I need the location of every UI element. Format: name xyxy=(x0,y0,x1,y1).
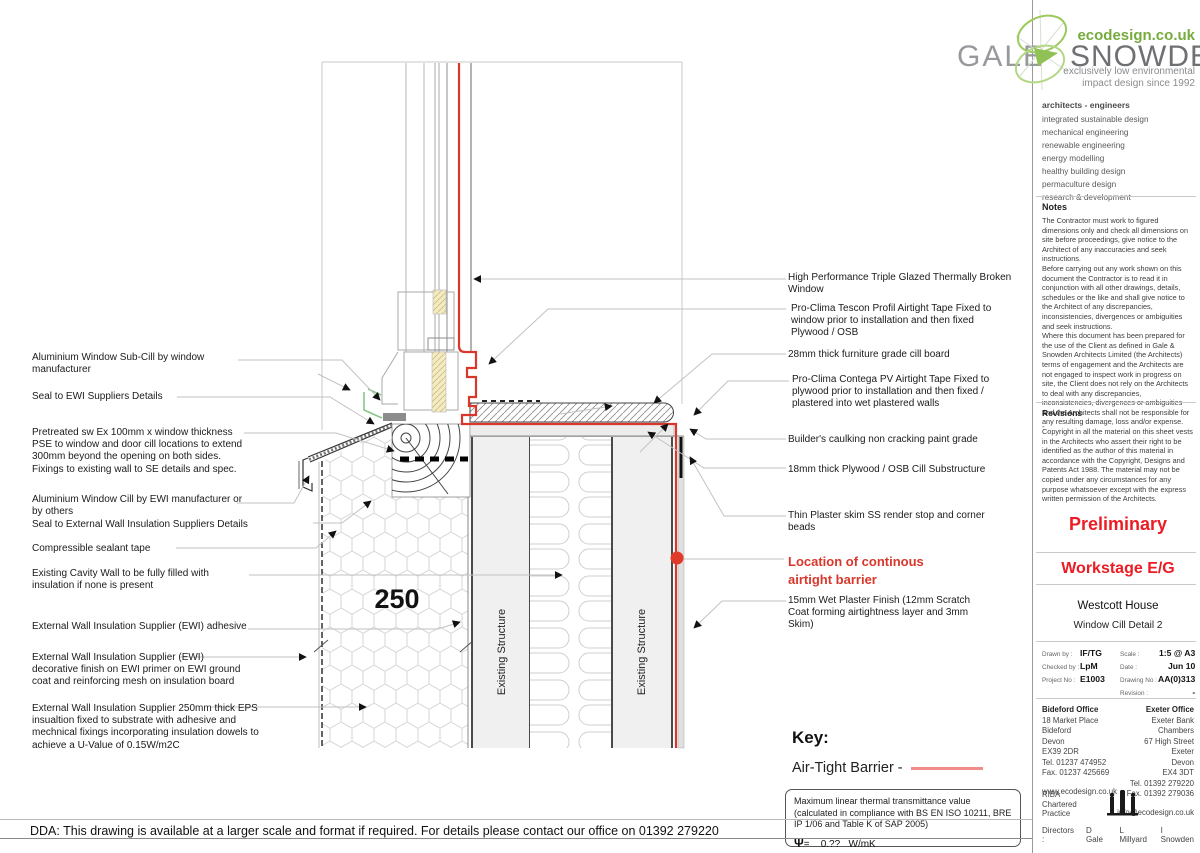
psi-eq: = xyxy=(804,839,810,850)
revisions-block: Revisions - xyxy=(1042,408,1194,431)
sidebar-divider xyxy=(1036,698,1196,699)
notes-paragraph: Before carrying out any work shown on th… xyxy=(1042,264,1194,331)
office-line: 67 High Street xyxy=(1117,737,1194,748)
exeter-office-title: Exeter Office xyxy=(1117,705,1194,716)
revisions-value: - xyxy=(1042,422,1194,431)
existing-wall xyxy=(470,436,684,748)
label-ewi-finish: External Wall Insulation Supplier (EWI) … xyxy=(32,652,250,689)
plywood-substructure xyxy=(470,424,674,437)
office-line: Fax. 01237 425669 xyxy=(1042,768,1117,779)
riba-line: Practice xyxy=(1042,809,1077,819)
directors-row: Directors : D Gale L Millyard I Snowden xyxy=(1042,826,1194,844)
label-eps-insulation: External Wall Insulation Supplier 250mm … xyxy=(32,703,277,752)
airtight-barrier-swatch xyxy=(911,767,983,770)
riba-block: RIBA Chartered Practice xyxy=(1042,790,1194,819)
sidebar-divider xyxy=(1036,641,1196,642)
label-tescon-tape: Pro-Clima Tescon Profil Airtight Tape Fi… xyxy=(791,303,1009,340)
office-line: Devon xyxy=(1042,737,1117,748)
drawing-no-label: Drawing No : xyxy=(1120,677,1158,684)
label-ewi-adhesive: External Wall Insulation Supplier (EWI) … xyxy=(32,621,247,633)
sidebar-divider xyxy=(1036,552,1196,553)
key-title: Key: xyxy=(792,728,829,748)
revisions-title: Revisions xyxy=(1042,408,1194,418)
date-label: Date : xyxy=(1120,664,1158,671)
drawing-no-value: AA(0)313 xyxy=(1158,674,1195,684)
label-sealant-tape: Compressible sealant tape xyxy=(32,543,277,555)
label-aluminium-cill: Aluminium Window Cill by EWI manufacture… xyxy=(32,494,247,518)
project-no-value: E1003 xyxy=(1080,674,1120,684)
key-airtight-label: Air-Tight Barrier - xyxy=(792,760,903,776)
riba-line: RIBA xyxy=(1042,790,1077,800)
label-seal-ewi: Seal to EWI Suppliers Details xyxy=(32,391,277,403)
label-triple-glazed: High Performance Triple Glazed Thermally… xyxy=(788,272,1016,296)
director-name: L Millyard xyxy=(1119,826,1148,844)
label-cavity-wall: Existing Cavity Wall to be fully filled … xyxy=(32,568,250,592)
notes-paragraph: Copyright in all the material on this sh… xyxy=(1042,427,1194,504)
services-title: architects - engineers xyxy=(1042,100,1194,110)
office-line: EX39 2DR xyxy=(1042,747,1117,758)
date-value: Jun 10 xyxy=(1158,661,1195,671)
service-item: mechanical engineering xyxy=(1042,126,1194,139)
dda-note: DDA: This drawing is available at a larg… xyxy=(30,824,719,838)
label-airtight-barrier-location: Location of continous airtight barrier xyxy=(788,553,958,588)
label-seal-external: Seal to External Wall Insulation Supplie… xyxy=(32,519,322,531)
service-item: integrated sustainable design xyxy=(1042,113,1194,126)
notes-paragraph: The Contractor must work to figured dime… xyxy=(1042,216,1194,264)
service-item: energy modelling xyxy=(1042,152,1194,165)
existing-structure-label-1: Existing Structure xyxy=(496,609,508,695)
key-airtight-entry: Air-Tight Barrier - xyxy=(792,760,983,776)
logo-url: ecodesign.co.uk xyxy=(1063,27,1195,44)
services-block: architects - engineers integrated sustai… xyxy=(1042,100,1194,204)
office-line: Exeter Bank Chambers xyxy=(1117,716,1194,737)
scale-label: Scale : xyxy=(1120,651,1158,658)
project-no-label: Project No : xyxy=(1042,677,1080,684)
office-line: Bideford xyxy=(1042,726,1117,737)
psi-note: Maximum linear thermal transmittance val… xyxy=(794,796,1012,831)
notes-title: Notes xyxy=(1042,202,1194,212)
office-line: Tel. 01237 474952 xyxy=(1042,758,1117,769)
drawing-title: Window Cill Detail 2 xyxy=(1042,620,1194,631)
sidebar-divider xyxy=(1036,402,1196,403)
title-block: Drawn by : IF/TG Scale : 1:5 @ A3 Checke… xyxy=(1042,648,1194,697)
drawn-by-value: IF/TG xyxy=(1080,648,1120,658)
wet-plaster-finish xyxy=(678,437,684,748)
label-contega-tape: Pro-Clima Contega PV Airtight Tape Fixed… xyxy=(792,374,1024,411)
service-item: renewable engineering xyxy=(1042,139,1194,152)
drawing-frame-lines xyxy=(322,62,682,430)
sidebar-divider xyxy=(1036,584,1196,585)
riba-logo xyxy=(1103,790,1143,818)
dimension-250: 250 xyxy=(374,584,419,614)
label-plaster-skim: Thin Plaster skim SS render stop and cor… xyxy=(788,510,993,534)
office-line: Tel. 01392 279220 xyxy=(1117,779,1194,790)
office-line: Exeter xyxy=(1117,747,1194,758)
scale-value: 1:5 @ A3 xyxy=(1158,648,1195,658)
revision-value: - xyxy=(1158,687,1195,697)
label-plywood-substructure: 18mm thick Plywood / OSB Cill Substructu… xyxy=(788,464,1023,476)
checked-by-value: LpM xyxy=(1080,661,1120,671)
label-pretreated-sw: Pretreated sw Ex 100mm x window thicknes… xyxy=(32,427,252,476)
service-item: healthy building design xyxy=(1042,165,1194,178)
label-builders-caulking: Builder's caulking non cracking paint gr… xyxy=(788,434,1023,446)
drawing-sheet: { "branding": { "name_left": "GALE", "na… xyxy=(0,0,1200,853)
director-name: I Snowden xyxy=(1161,826,1194,844)
footer-divider xyxy=(0,819,1032,820)
revision-label: Revision : xyxy=(1120,690,1158,697)
logo-tagline-1: exclusively low environmental xyxy=(1040,66,1195,77)
bideford-office-title: Bideford Office xyxy=(1042,705,1117,716)
airtight-barrier-marker-dot xyxy=(671,552,684,565)
label-cill-board: 28mm thick furniture grade cill board xyxy=(788,349,1023,361)
psi-value: 0.?? xyxy=(821,839,840,850)
directors-label: Directors : xyxy=(1042,826,1074,844)
psi-unit: W/mK xyxy=(849,839,876,850)
drawn-by-label: Drawn by : xyxy=(1042,651,1080,658)
preliminary-stamp: Preliminary xyxy=(1042,514,1194,535)
existing-structure-label-2: Existing Structure xyxy=(636,609,648,695)
workstage-stamp: Workstage E/G xyxy=(1042,560,1194,578)
sidebar-divider xyxy=(1036,196,1196,197)
director-name: D Gale xyxy=(1086,826,1107,844)
office-line: EX4 3DT xyxy=(1117,768,1194,779)
label-wet-plaster: 15mm Wet Plaster Finish (12mm Scratch Co… xyxy=(788,595,978,632)
sheet-bottom-line xyxy=(0,838,1200,839)
label-sub-cill: Aluminium Window Sub-Cill by window manu… xyxy=(32,352,262,376)
riba-line: Chartered xyxy=(1042,800,1077,810)
cavity-insulation xyxy=(530,437,612,748)
logo-tagline-2: impact design since 1992 xyxy=(1040,78,1195,89)
office-line: 18 Market Place xyxy=(1042,716,1117,727)
checked-by-label: Checked by : xyxy=(1042,664,1080,671)
subcill-block xyxy=(383,413,406,421)
project-name: Westcott House xyxy=(1042,600,1194,612)
service-item: permaculture design xyxy=(1042,178,1194,191)
notes-block: Notes The Contractor must work to figure… xyxy=(1042,202,1194,504)
office-line: Devon xyxy=(1117,758,1194,769)
